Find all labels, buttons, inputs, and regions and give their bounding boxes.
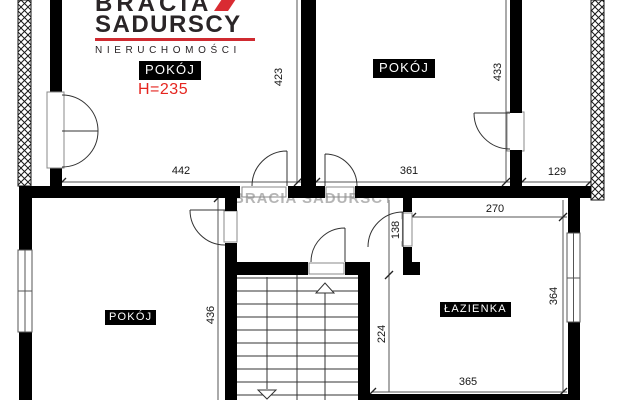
balcony-double-door [47, 92, 98, 168]
dim-270: 270 [484, 203, 506, 215]
agency-logo: BRACIA SADURSCY NIERUCHOMOŚCI [95, 0, 255, 56]
logo-divider [95, 38, 255, 41]
window-right [567, 233, 580, 322]
dim-442: 442 [170, 165, 192, 177]
room-label-bathroom: ŁAZIENKA [440, 302, 511, 317]
stairs-up-arrow [316, 283, 334, 293]
dim-423: 423 [273, 66, 285, 88]
logo-line-3: NIERUCHOMOŚCI [95, 45, 255, 56]
door-room-top-left [252, 151, 287, 186]
dim-364: 364 [548, 285, 560, 307]
dim-436: 436 [205, 304, 217, 326]
hatched-wall-left [18, 0, 31, 186]
room-label-bottom-left: POKÓJ [105, 310, 156, 325]
dim-361: 361 [398, 165, 420, 177]
floor-plan-canvas: BRACIA SADURSCY [0, 0, 620, 400]
floor-plan-drawing: BRACIA SADURSCY [0, 0, 620, 400]
dim-129: 129 [546, 166, 568, 178]
window-left [18, 250, 32, 332]
dim-138: 138 [390, 219, 402, 241]
room-height-note: H=235 [138, 81, 188, 99]
dim-433: 433 [492, 61, 504, 83]
hatched-wall-right [591, 0, 604, 200]
staircase [237, 275, 358, 400]
dim-224: 224 [376, 323, 388, 345]
room-label-top-middle: POKÓJ [373, 59, 435, 78]
door-room-bottom-left [190, 210, 225, 245]
logo-line-2: SADURSCY [95, 14, 255, 35]
door-stairs [311, 228, 345, 262]
door-right-space [474, 113, 510, 149]
dim-365: 365 [457, 376, 479, 388]
door-room-top-middle [325, 154, 357, 186]
room-label-top-left: POKÓJ [139, 61, 201, 80]
